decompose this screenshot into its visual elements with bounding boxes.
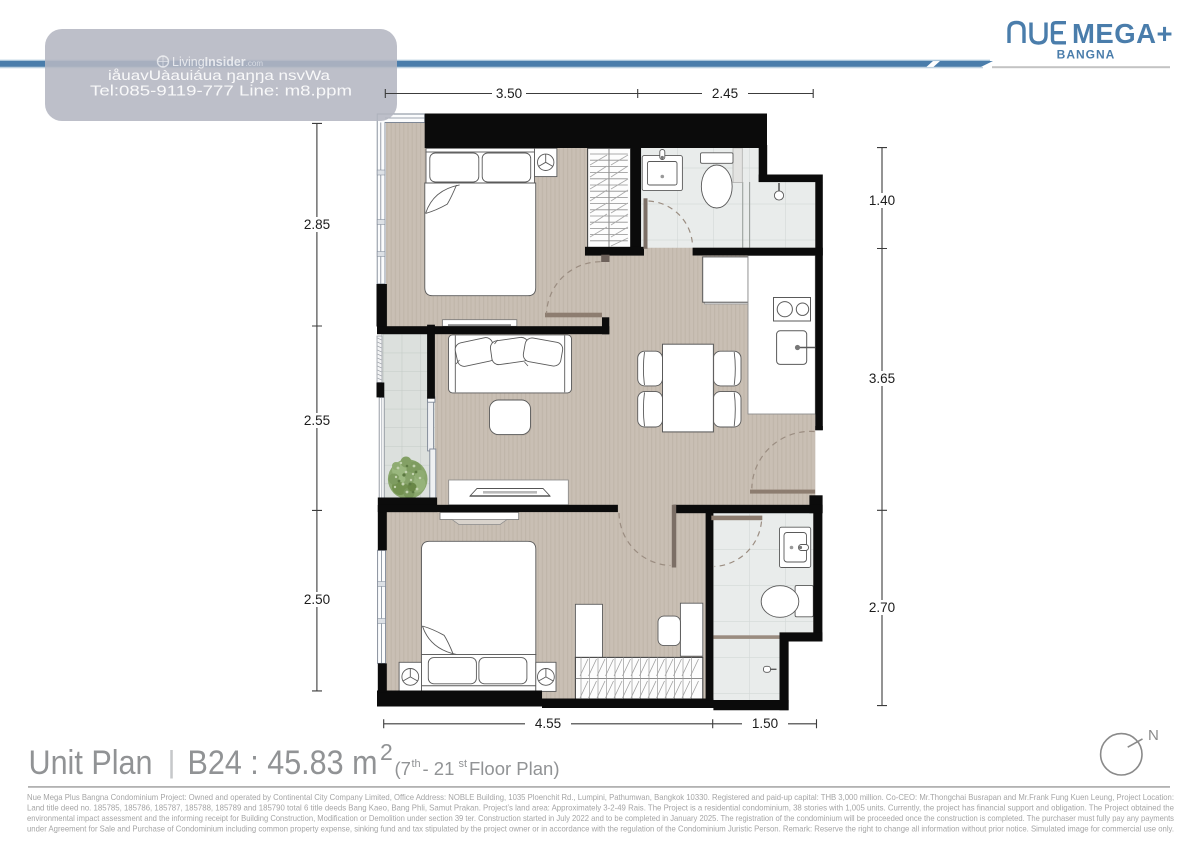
svg-text:2.55: 2.55 — [304, 413, 330, 428]
svg-text:|: | — [168, 744, 176, 779]
svg-text:(7: (7 — [395, 758, 411, 779]
svg-text:2.85: 2.85 — [304, 217, 330, 232]
svg-text:under Agreement for Sale and P: under Agreement for Sale and Purchase of… — [27, 825, 1174, 834]
svg-text:Tel:085-9119-777 Line: m8.ppm: Tel:085-9119-777 Line: m8.ppm — [90, 84, 352, 100]
svg-text:1.40: 1.40 — [869, 193, 895, 208]
svg-text:Floor Plan): Floor Plan) — [469, 758, 559, 779]
svg-text:N: N — [1148, 727, 1159, 744]
svg-text:th: th — [412, 758, 421, 770]
svg-text:1.50: 1.50 — [752, 716, 778, 731]
svg-text:3.50: 3.50 — [496, 86, 522, 101]
svg-text:2.70: 2.70 — [869, 600, 895, 615]
svg-text:iåuavUàauiáua ŋaŋŋa nsvWa: iåuavUàauiáua ŋaŋŋa nsvWa — [108, 68, 331, 83]
svg-text:st: st — [459, 758, 468, 770]
svg-text:3.65: 3.65 — [869, 371, 895, 386]
svg-text:Land title deed no. 185785, 18: Land title deed no. 185785, 185786, 1857… — [27, 804, 1174, 813]
svg-text:Nue Mega Plus Bangna Condomini: Nue Mega Plus Bangna Condominium Project… — [27, 793, 1174, 802]
svg-text:2.45: 2.45 — [712, 86, 738, 101]
svg-text:4.55: 4.55 — [535, 716, 561, 731]
svg-text:MEGA+: MEGA+ — [1072, 18, 1173, 49]
svg-text:environmental impact assessmen: environmental impact assessment and the … — [27, 814, 1174, 823]
svg-text:2: 2 — [380, 739, 393, 765]
svg-text:2.50: 2.50 — [304, 592, 330, 607]
svg-text:- 21: - 21 — [423, 758, 455, 779]
svg-text:B24 : 45.83 m: B24 : 45.83 m — [188, 744, 378, 782]
svg-text:Unit Plan: Unit Plan — [29, 744, 153, 782]
svg-text:BANGNA: BANGNA — [1057, 48, 1116, 62]
